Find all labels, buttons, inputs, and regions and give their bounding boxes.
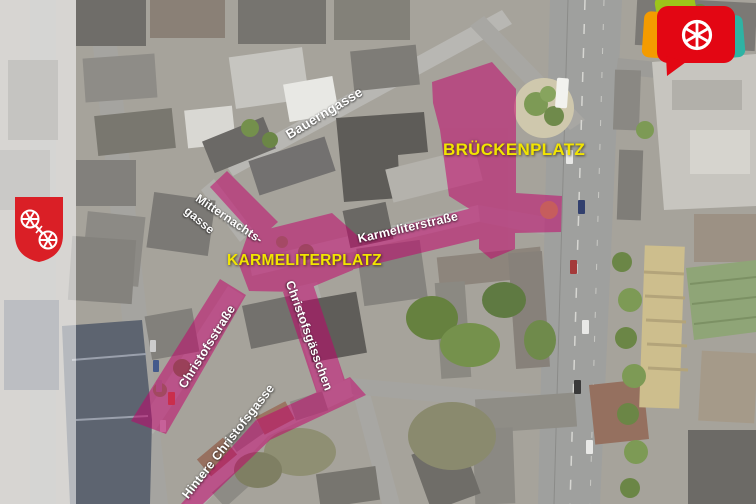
aerial-map-view: BRÜCKENPLATZ KARMELITERPLATZ Bauerngasse… [0,0,756,504]
mainz-coat-of-arms-shield [15,197,63,262]
area-label-karmeliterplatz: KARMELITERPLATZ [227,253,382,269]
area-label-brueckenplatz: BRÜCKENPLATZ [443,141,585,158]
